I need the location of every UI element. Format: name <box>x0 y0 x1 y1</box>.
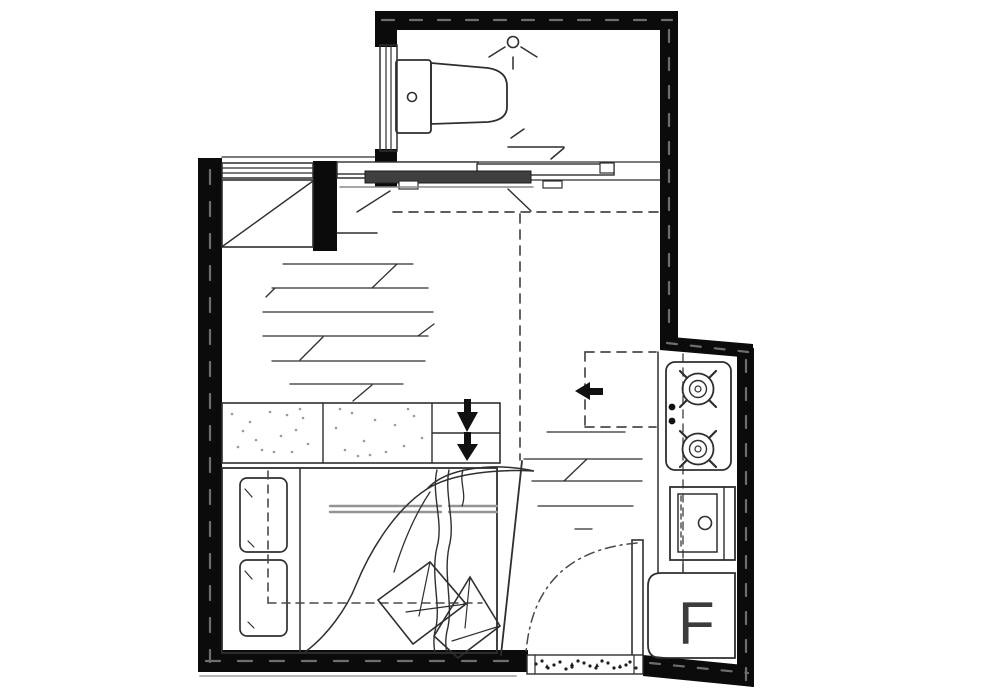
desk-stipple <box>413 415 416 418</box>
down-arrow-icon <box>464 399 471 413</box>
cooktop <box>666 362 731 470</box>
pillow <box>240 478 287 552</box>
threshold-speckle <box>612 666 615 669</box>
desk-stipple <box>403 445 406 448</box>
desk-stipple <box>335 427 338 430</box>
floor-plan-elements <box>198 11 754 687</box>
burner-grate-tick <box>709 431 716 438</box>
desk-stipple <box>291 451 294 454</box>
sliding-door-end-cap <box>543 181 562 188</box>
shower-head-icon <box>508 37 519 48</box>
threshold-speckle <box>634 666 637 669</box>
desk-stipple <box>369 454 372 457</box>
toilet-tank <box>396 60 431 133</box>
entry-door-leaf <box>632 540 643 657</box>
down-arrow-icon <box>464 432 471 445</box>
pillow-fold-line <box>245 489 252 497</box>
desk-stipple <box>255 439 258 442</box>
sliding-door-end-cap <box>600 163 614 173</box>
shower-spray-line <box>489 47 505 57</box>
wall-window-column <box>313 161 337 251</box>
threshold-speckle <box>552 663 555 666</box>
desk-stipple <box>242 430 245 433</box>
threshold-speckle <box>628 660 631 663</box>
threshold-speckle <box>588 664 591 667</box>
shower-spray-line <box>521 47 537 57</box>
desk-stipple <box>286 414 289 417</box>
sink-drain <box>699 517 712 530</box>
threshold-speckle <box>582 661 585 664</box>
desk-stipple <box>307 443 310 446</box>
left-arrow-icon <box>589 388 603 395</box>
wall-bathroom-left-upper <box>375 11 397 47</box>
blanket-wave <box>446 470 451 653</box>
threshold-speckle <box>564 667 567 670</box>
desk-stipple <box>249 421 252 424</box>
wardrobe-diagonal <box>223 181 313 246</box>
desk-stipple <box>394 424 397 427</box>
bed-side-partition <box>501 461 522 655</box>
toilet-bowl <box>431 63 507 124</box>
pillow-fold-line <box>248 622 254 628</box>
burner-center <box>695 446 701 452</box>
burner-grate-tick <box>709 460 716 467</box>
toilet-flush-button <box>408 93 417 102</box>
pillow <box>240 560 287 636</box>
threshold-speckle <box>624 663 627 666</box>
fridge-label: F <box>678 590 715 657</box>
threshold-speckle <box>576 659 579 662</box>
door-swing-tick <box>508 189 531 211</box>
desk-stipple <box>231 413 234 416</box>
threshold-speckle <box>600 659 603 662</box>
pillow-fold-line <box>248 541 254 547</box>
cooktop-knob <box>669 418 676 425</box>
floor-plank-break <box>353 385 372 401</box>
floor-plank-break <box>266 288 275 297</box>
desk-stipple <box>295 429 298 432</box>
threshold-speckle <box>540 659 543 662</box>
sliding-door-panel <box>365 171 531 183</box>
burner-grate-tick <box>709 400 716 407</box>
cushion <box>434 577 500 658</box>
floor-plank-break <box>300 337 323 360</box>
desk-stipple <box>407 408 410 411</box>
floor-plan-page: F <box>0 0 1000 689</box>
down-arrow-icon <box>457 412 478 432</box>
desk-stipple <box>357 455 360 458</box>
desk-stipple <box>269 411 272 414</box>
desk-stipple <box>237 446 240 449</box>
desk-stipple <box>280 435 283 438</box>
desk-stipple <box>273 451 276 454</box>
sink-counter <box>670 487 735 560</box>
door-swing-tick <box>357 191 390 212</box>
cushion-fold-line <box>419 562 430 616</box>
threshold-speckle <box>558 660 561 663</box>
down-arrow-icon <box>457 444 478 461</box>
floor-slope-symbol <box>511 129 524 138</box>
desk-stipple <box>344 449 347 452</box>
floor-plank-break <box>418 324 434 336</box>
threshold-speckle <box>606 661 609 664</box>
pillow-fold-line <box>245 571 252 579</box>
window-left <box>222 163 313 178</box>
burner-grate-tick <box>709 371 716 378</box>
desk-stipple <box>299 408 302 411</box>
entry-door-swing-arc <box>526 543 637 653</box>
floor-slope-symbol <box>551 148 564 159</box>
desk-stipple <box>421 437 424 440</box>
desk-stipple <box>385 451 388 454</box>
burner-ring <box>690 381 707 398</box>
floor-plank-break <box>564 459 587 481</box>
blanket-sweep <box>394 492 430 572</box>
sliding-door-end-cap <box>399 181 418 189</box>
desk-stipple <box>351 412 354 415</box>
burner-ring <box>690 441 707 458</box>
cooktop-knob <box>669 404 676 411</box>
cushion-fold-line <box>452 626 500 641</box>
burner-center <box>695 386 701 392</box>
floor-plank-break <box>372 264 397 288</box>
desk-stipple <box>363 440 366 443</box>
threshold-speckle <box>534 662 537 665</box>
desk-stipple <box>374 419 377 422</box>
bathroom-window <box>380 45 397 151</box>
blanket-sweep <box>305 489 427 652</box>
desk-stipple <box>302 417 305 420</box>
desk-stipple <box>261 449 264 452</box>
blanket-fold <box>427 467 534 489</box>
floor-plan-drawing: F <box>0 0 1000 689</box>
left-arrow-icon <box>575 382 590 400</box>
desk-stipple <box>339 408 342 411</box>
